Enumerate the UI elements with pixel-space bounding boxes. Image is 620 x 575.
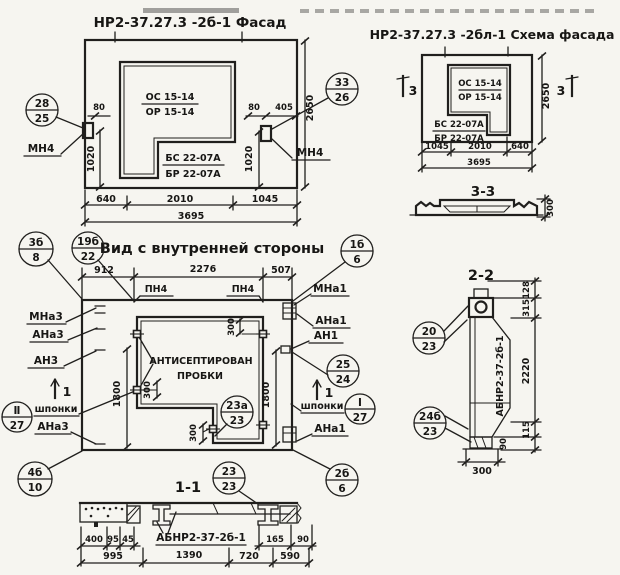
facade-badge-28-25: 28 25 <box>26 94 83 128</box>
facade-or-mark: ОР 15-14 <box>146 107 195 118</box>
svg-text:МН4: МН4 <box>297 147 324 159</box>
svg-text:33: 33 <box>335 77 350 89</box>
svg-text:10: 10 <box>28 482 43 494</box>
svg-text:640: 640 <box>96 194 116 205</box>
svg-text:20: 20 <box>422 326 437 338</box>
drawing-canvas: НР2-37.27.3 -2б-1 Фасад ОС 15-14 ОР 15-1… <box>0 0 620 575</box>
facade-dims-80-405-right: 80 405 <box>244 103 300 120</box>
scheme-bs-mark: БС 22-07А <box>434 120 484 130</box>
view-ana3-top-label: АНа3 <box>30 328 97 342</box>
scheme-section-mark-right: 3 <box>557 76 578 98</box>
svg-text:АНТИСЕПТИРОВАН: АНТИСЕПТИРОВАН <box>149 356 252 367</box>
svg-text:ПН4: ПН4 <box>232 284 255 295</box>
svg-text:590: 590 <box>280 551 300 562</box>
scheme-title: НР2-37.27.3 -2бл-1 Схема фасада <box>370 27 615 42</box>
section-1-1-dims-row-2: 995 1390 720 590 <box>77 548 313 567</box>
section-3-3: 3-3 300 <box>410 184 556 221</box>
svg-text:АБНР2-37-2б-1: АБНР2-37-2б-1 <box>156 532 246 544</box>
svg-text:19б: 19б <box>77 236 99 248</box>
section-1-1-title: 1-1 <box>175 480 201 496</box>
svg-text:АН3: АН3 <box>34 355 58 367</box>
svg-text:2010: 2010 <box>468 142 492 152</box>
svg-text:400: 400 <box>85 535 103 545</box>
view-section-mark-1-right: 1 <box>313 380 333 400</box>
badge-20-23: 20 23 <box>413 306 468 354</box>
svg-text:300: 300 <box>227 318 237 336</box>
section-3-3-dim-300: 300 <box>537 195 556 221</box>
svg-text:1020: 1020 <box>86 145 97 172</box>
facade-br-mark: БР 22-07А <box>165 169 221 180</box>
svg-text:300: 300 <box>546 199 556 217</box>
section-1-1-profile <box>80 503 301 527</box>
section-1-1-panel-mark: АБНР2-37-2б-1 <box>156 512 246 545</box>
svg-text:1800: 1800 <box>112 380 123 407</box>
svg-text:3695: 3695 <box>178 211 204 222</box>
svg-text:шпонки: шпонки <box>301 401 344 412</box>
svg-text:995: 995 <box>103 551 123 562</box>
svg-text:507: 507 <box>271 265 291 276</box>
view-antiseptic-note: АНТИСЕПТИРОВАН ПРОБКИ <box>139 337 253 389</box>
svg-text:1045: 1045 <box>425 142 449 152</box>
view-dim-300-leg: 300 <box>189 422 209 445</box>
facade-dim-2650: 2650 <box>301 38 316 191</box>
badge-2b-6: 2б 6 <box>293 450 358 496</box>
svg-text:24: 24 <box>336 374 351 386</box>
section-2-2-panel-mark: АБНР2-37-2б-1 <box>495 335 506 416</box>
svg-text:405: 405 <box>275 103 293 113</box>
svg-text:Ⅱ: Ⅱ <box>14 405 21 417</box>
view-top-dims: 912 2276 507 <box>78 264 296 302</box>
svg-text:27: 27 <box>353 412 368 424</box>
plug-symbol <box>130 331 144 338</box>
svg-text:АНа1: АНа1 <box>315 315 346 327</box>
badge-24b-23: 24б 23 <box>414 407 471 442</box>
svg-text:22: 22 <box>81 251 96 263</box>
scheme-view: НР2-37.27.3 -2бл-1 Схема фасада ОС 15-14… <box>370 27 615 172</box>
view-dim-300-left: 300 <box>143 379 161 401</box>
badge-4b-10: 4б 10 <box>18 451 82 496</box>
svg-text:90: 90 <box>297 535 309 545</box>
svg-text:80: 80 <box>93 103 105 113</box>
section-3-3-profile <box>410 200 543 215</box>
svg-text:912: 912 <box>94 265 114 276</box>
section-2-2-dim-300: 300 <box>458 449 505 477</box>
view-an3-label: АН3 <box>28 351 96 368</box>
view-dim-300-top: 300 <box>227 317 256 337</box>
svg-text:2650: 2650 <box>541 82 552 109</box>
plug-symbol <box>256 331 270 338</box>
svg-text:6: 6 <box>353 254 360 266</box>
facade-dim-80-left: 80 <box>88 103 110 120</box>
svg-text:1390: 1390 <box>176 550 203 561</box>
scheme-dim-2650: 2650 <box>538 53 552 145</box>
facade-mn4-right-label: МН4 <box>272 139 330 160</box>
svg-text:300: 300 <box>472 466 492 477</box>
svg-text:1: 1 <box>325 385 334 400</box>
scheme-section-mark-left: 3 <box>397 76 417 98</box>
view-ana3-bottom-label: АНа3 <box>35 421 96 444</box>
svg-text:ПН4: ПН4 <box>145 284 168 295</box>
svg-text:24б: 24б <box>419 411 441 423</box>
blueprint-sheet: НР2-37.27.3 -2б-1 Фасад ОС 15-14 ОР 15-1… <box>0 0 620 575</box>
svg-text:ПРОБКИ: ПРОБКИ <box>177 371 223 382</box>
svg-text:720: 720 <box>239 551 259 562</box>
svg-text:2010: 2010 <box>167 194 194 205</box>
badge-I-27: Ⅰ 27 <box>345 394 375 424</box>
svg-text:АНа1: АНа1 <box>314 423 345 435</box>
svg-text:АН1: АН1 <box>314 330 338 342</box>
svg-text:23: 23 <box>422 341 437 353</box>
svg-text:23: 23 <box>222 481 237 493</box>
svg-text:26: 26 <box>335 92 350 104</box>
svg-text:315: 315 <box>522 299 532 317</box>
svg-text:27: 27 <box>10 420 25 432</box>
svg-text:25: 25 <box>336 359 351 371</box>
svg-text:90: 90 <box>499 438 509 450</box>
facade-title: НР2-37.27.3 -2б-1 Фасад <box>94 15 287 31</box>
badge-II-27: Ⅱ 27 <box>2 402 32 432</box>
svg-text:3: 3 <box>409 83 418 98</box>
facade-bs-mark: БС 22-07А <box>165 153 221 164</box>
svg-text:95: 95 <box>107 535 119 545</box>
svg-text:28: 28 <box>35 98 50 110</box>
scheme-os-mark: ОС 15-14 <box>458 79 502 89</box>
svg-text:1: 1 <box>63 384 72 399</box>
scheme-or-mark: ОР 15-14 <box>458 93 502 103</box>
view-section-mark-1-left: 1 <box>51 379 71 399</box>
svg-text:300: 300 <box>143 381 153 399</box>
svg-text:640: 640 <box>511 142 529 152</box>
view-an1-label: АН1 <box>291 330 343 349</box>
section-3-3-title: 3-3 <box>471 184 495 200</box>
svg-text:3б: 3б <box>29 237 44 249</box>
facade-os-mark: ОС 15-14 <box>146 92 195 103</box>
svg-text:МНа3: МНа3 <box>29 311 63 323</box>
svg-text:23а: 23а <box>226 400 248 412</box>
svg-text:1045: 1045 <box>252 194 278 205</box>
inner-side-view: Вид с внутренней стороны 3б 8 19б 22 1б … <box>2 232 375 496</box>
svg-text:1б: 1б <box>350 239 365 251</box>
svg-text:2276: 2276 <box>190 264 217 275</box>
facade-view: НР2-37.27.3 -2б-1 Фасад ОС 15-14 ОР 15-1… <box>24 15 358 226</box>
svg-text:23: 23 <box>222 466 237 478</box>
svg-text:80: 80 <box>248 103 260 113</box>
svg-text:Ⅰ: Ⅰ <box>358 397 362 409</box>
badge-23-23: 23 23 <box>213 462 258 504</box>
view-mna3-label: МНа3 <box>27 308 96 324</box>
svg-text:МН4: МН4 <box>28 143 55 155</box>
svg-text:2б: 2б <box>335 468 350 480</box>
scheme-dim-row-2: 3695 <box>418 158 536 172</box>
section-2-2: 2-2 АБНР2-37-2б-1 20 23 24б 23 <box>413 268 541 477</box>
svg-text:45: 45 <box>122 535 134 545</box>
view-ana1-top-label: АНа1 <box>297 314 350 328</box>
facade-dim-row-2: 3695 <box>81 211 301 226</box>
svg-text:МНа1: МНа1 <box>313 283 347 295</box>
svg-text:25: 25 <box>35 113 50 125</box>
view-shponki-right-label: шпонки <box>291 401 344 413</box>
badge-23a-23: 23а 23 <box>215 396 253 436</box>
svg-text:шпонки: шпонки <box>35 404 78 415</box>
svg-text:АНа3: АНа3 <box>32 329 63 341</box>
svg-text:АНа3: АНа3 <box>37 421 68 433</box>
svg-text:128: 128 <box>522 281 532 299</box>
view-dim-1800-left: 1800 <box>112 346 131 451</box>
svg-text:1020: 1020 <box>244 145 255 172</box>
svg-text:3: 3 <box>557 83 566 98</box>
view-ana1-bottom-label: АНа1 <box>297 423 348 441</box>
svg-text:300: 300 <box>189 424 199 442</box>
section-1-1: 1-1 23 23 АБНР <box>77 462 316 567</box>
svg-text:23: 23 <box>423 426 438 438</box>
inner-view-title: Вид с внутренней стороны <box>100 241 324 257</box>
svg-text:8: 8 <box>32 252 39 264</box>
svg-text:165: 165 <box>266 535 284 545</box>
svg-text:23: 23 <box>230 415 245 427</box>
svg-text:2650: 2650 <box>305 94 316 121</box>
svg-text:3695: 3695 <box>467 158 491 168</box>
badge-25-24: 25 24 <box>292 352 359 387</box>
svg-text:115: 115 <box>522 421 532 439</box>
facade-mn4-left-label: МН4 <box>24 133 84 156</box>
svg-text:6: 6 <box>338 483 345 495</box>
svg-text:4б: 4б <box>28 467 43 479</box>
scan-smudge <box>143 8 239 13</box>
svg-text:1800: 1800 <box>261 381 272 408</box>
plug-symbol <box>256 422 270 429</box>
svg-text:2220: 2220 <box>521 357 532 384</box>
